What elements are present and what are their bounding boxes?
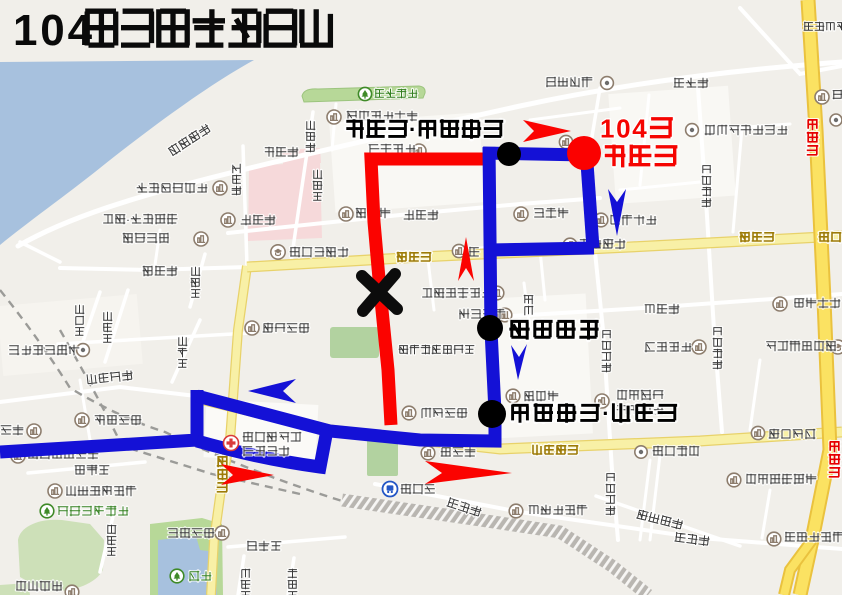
svg-text:0: 0 [40,6,64,55]
svg-text:1: 1 [600,113,614,143]
svg-text:1: 1 [13,6,37,55]
svg-text:·: · [409,117,416,142]
svg-text:·: · [126,212,130,226]
svg-text:·: · [602,401,609,426]
svg-text:4: 4 [632,113,647,143]
svg-text:0: 0 [616,113,630,143]
